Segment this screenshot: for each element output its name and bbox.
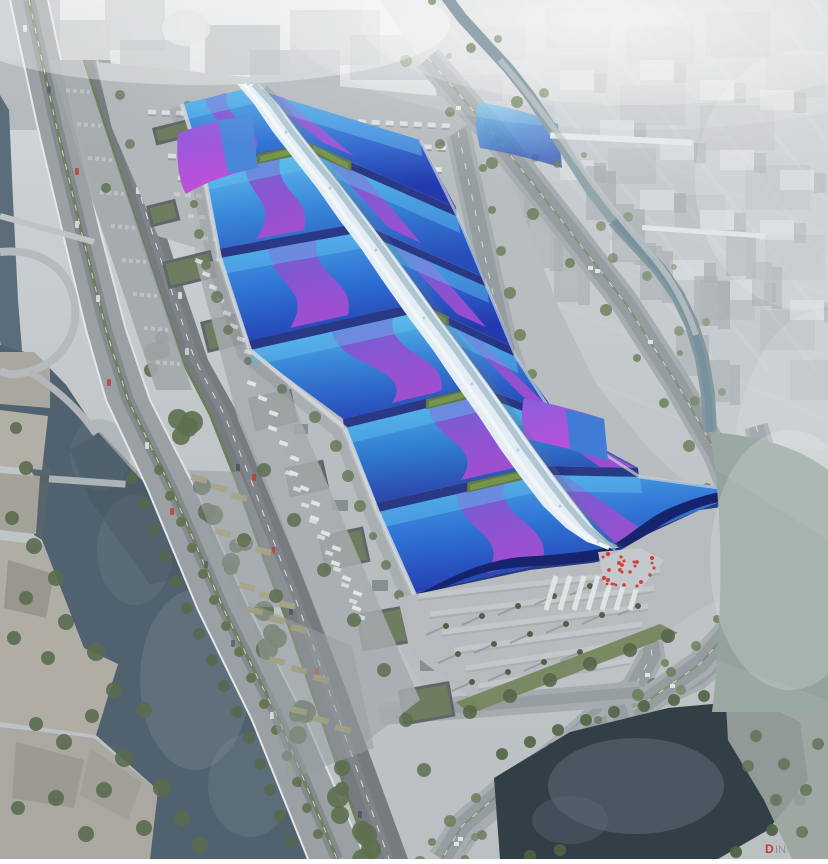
svg-text:D: D — [765, 842, 774, 856]
svg-text:IN: IN — [775, 844, 786, 856]
